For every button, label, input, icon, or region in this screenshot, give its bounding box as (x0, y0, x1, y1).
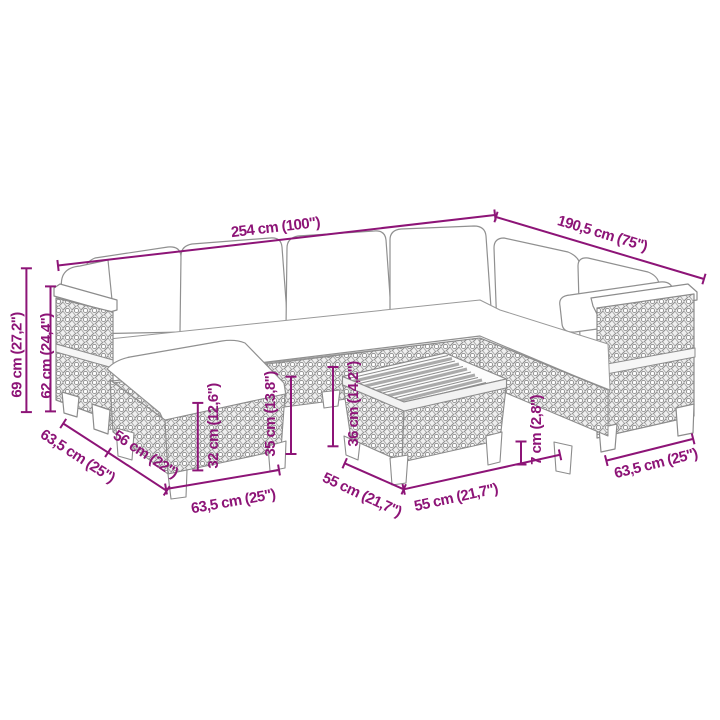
svg-text:35 cm (13,8"): 35 cm (13,8") (262, 371, 279, 457)
svg-text:36 cm (14,2"): 36 cm (14,2") (345, 361, 362, 447)
svg-text:63,5 cm (25"): 63,5 cm (25") (190, 486, 277, 518)
svg-text:63,5 cm (25"): 63,5 cm (25") (613, 445, 700, 482)
svg-text:69 cm (27,2"): 69 cm (27,2") (9, 312, 26, 398)
svg-text:7 cm (2,8"): 7 cm (2,8") (528, 395, 545, 465)
svg-text:32 cm (12,6"): 32 cm (12,6") (205, 383, 222, 469)
svg-text:62 cm (24,4"): 62 cm (24,4") (38, 313, 55, 399)
